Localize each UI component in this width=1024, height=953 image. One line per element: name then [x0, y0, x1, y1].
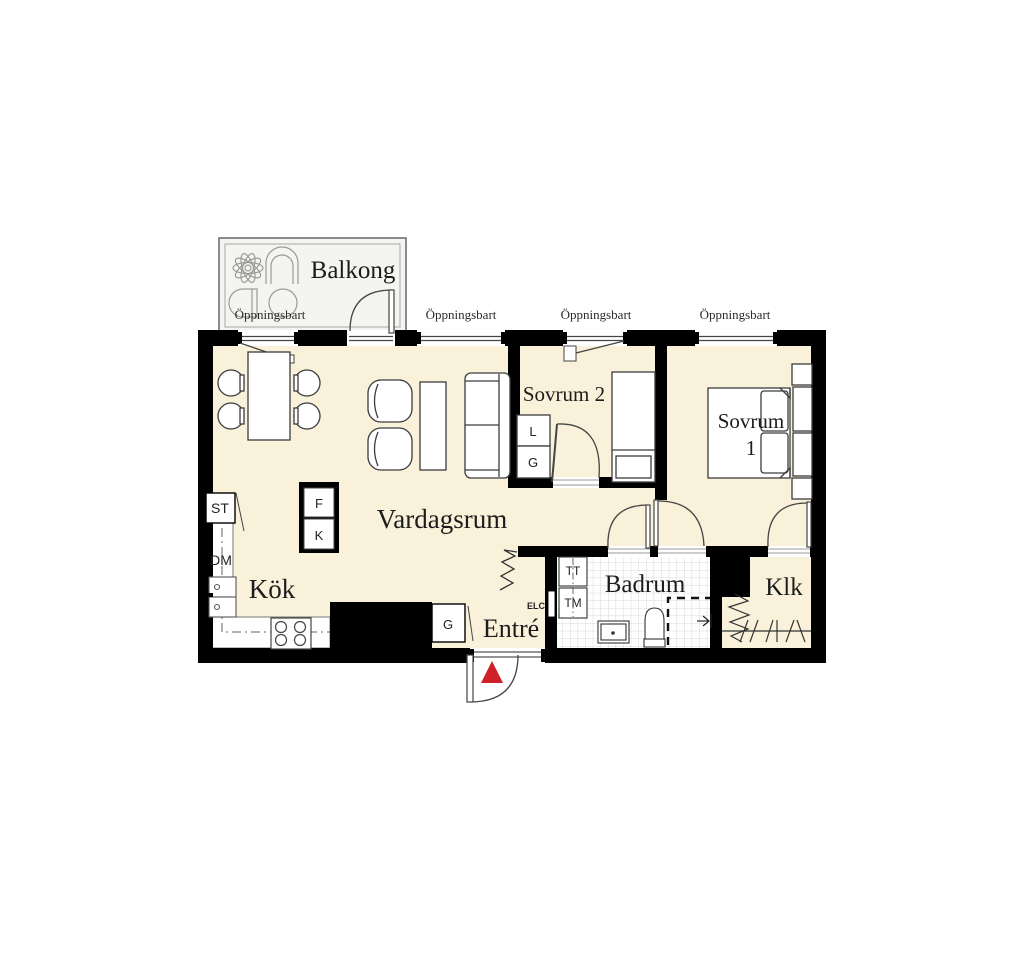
room-label-balkong: Balkong [311, 257, 396, 284]
dishwasher-label: DM [210, 552, 232, 568]
room-label-vardagsrum: Vardagsrum [377, 504, 507, 534]
room-label-klk: Klk [765, 574, 803, 601]
entry-arrow-icon [481, 661, 503, 683]
electrical-cabinet-label: ELC [527, 601, 546, 611]
door-entrance [467, 648, 545, 702]
washer-label: TM [564, 596, 581, 610]
electrical-cabinet [548, 591, 555, 617]
stove-icon [271, 618, 311, 649]
window-sovrum1-icon [695, 330, 777, 346]
floor-plan: Balkong Öppningsbart Öppningsbart Öppnin… [0, 0, 1024, 953]
bathroom-sink-icon [598, 621, 629, 643]
fridge-label: F [315, 496, 323, 511]
window-label-sovrum2: Öppningsbart [561, 307, 632, 322]
floor-plan-page: Balkong Öppningsbart Öppningsbart Öppnin… [0, 0, 1024, 953]
wardrobe-label-sovrum2: G [528, 455, 538, 470]
window-label-balcony: Öppningsbart [235, 307, 306, 322]
wardrobe-label-entre: G [443, 617, 453, 632]
window-label-sovrum1: Öppningsbart [700, 307, 771, 322]
room-label-sovrum2: Sovrum 2 [523, 382, 605, 406]
nightstand-bottom [792, 478, 812, 499]
room-label-badrum: Badrum [605, 571, 686, 598]
room-balkong: Balkong Öppningsbart [219, 238, 406, 332]
nightstand-top [792, 364, 812, 385]
cleaning-cabinet-label: ST [211, 500, 229, 516]
linen-cabinet-label: L [529, 424, 536, 439]
room-label-sovrum1-number: 1 [746, 436, 757, 460]
coffee-table [420, 382, 446, 470]
freezer-label: K [315, 528, 324, 543]
room-label-kok: Kök [249, 574, 296, 604]
fridge-freezer: F K [299, 482, 339, 553]
toilet-icon [644, 608, 665, 647]
dryer-label: TT [566, 564, 581, 578]
window-label-vardagsrum: Öppningsbart [426, 307, 497, 322]
sofa [465, 373, 510, 478]
window-vardagsrum-icon [417, 330, 505, 346]
dining-table [248, 352, 290, 440]
room-label-entre: Entré [483, 614, 539, 643]
room-label-sovrum1: Sovrum [718, 409, 785, 433]
